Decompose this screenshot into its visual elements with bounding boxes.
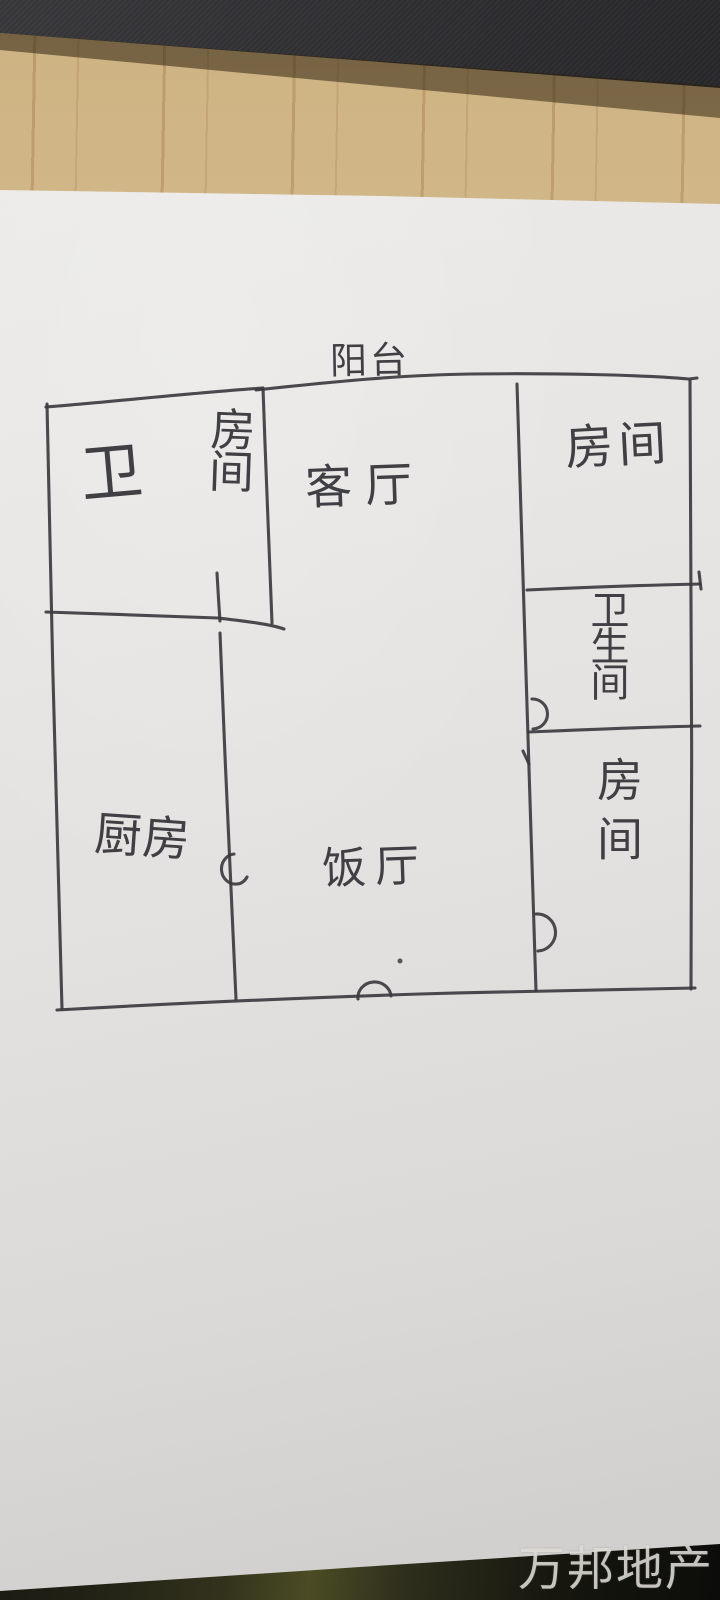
wall-kitchen-top — [46, 612, 284, 629]
room-label-bedroom-bottom-right: 房间 — [584, 756, 650, 874]
wall-bathroom-bottom — [529, 726, 700, 732]
photo-of-floor-plan: 阳台 卫 房间 客厅 房间 卫生间 房间 厨房 饭厅 万邦地产 — [0, 0, 720, 1600]
wall-bottom — [57, 988, 695, 1010]
bedroom-br-door-arc — [536, 914, 556, 951]
kitchen-door-arc — [221, 854, 247, 884]
room-label-bedroom-top-right: 房间 — [563, 403, 673, 478]
wall-door-stub — [217, 573, 220, 621]
wall-top-left-room — [46, 388, 263, 407]
room-label-bedroom-top-left: 房间 — [204, 405, 253, 491]
watermark-text: 万邦地产 — [518, 1530, 714, 1599]
wall-kitchen-right — [220, 633, 236, 999]
room-label-living-room: 客厅 — [304, 445, 426, 518]
pen-dot — [398, 959, 403, 964]
room-label-toilet: 卫 — [76, 419, 146, 514]
room-label-dining-room: 饭厅 — [321, 829, 429, 897]
room-label-kitchen: 厨房 — [93, 795, 194, 871]
wall-top — [256, 374, 697, 390]
wall-right — [690, 380, 692, 989]
wall-right-column-left — [517, 384, 536, 991]
wall-left — [47, 404, 62, 1009]
wall-living-left-upper — [263, 388, 272, 623]
wall-tick-right — [699, 572, 701, 589]
room-label-bathroom: 卫生间 — [588, 590, 625, 698]
room-label-balcony: 阳台 — [330, 329, 411, 384]
bathroom-door-arc — [532, 699, 547, 729]
